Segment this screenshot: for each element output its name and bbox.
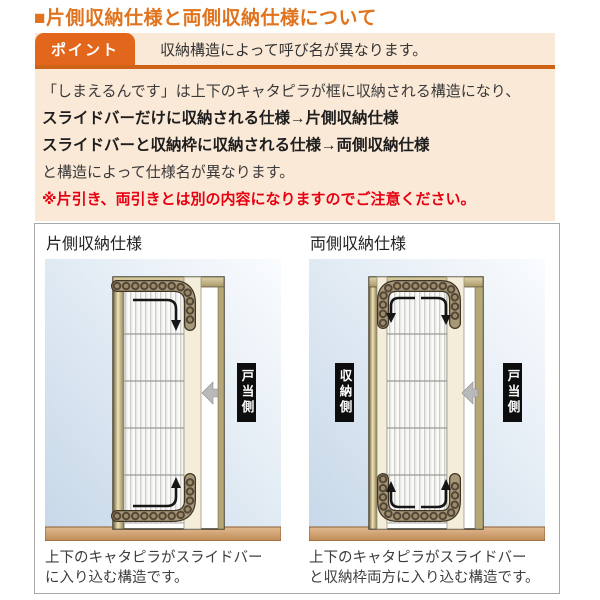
point-section: ポイント 収納構造によって呼び名が異なります。 「しまえるんです」は上下のキャタ… [35, 33, 555, 221]
caption-line: 上下のキャタピラがスライドバー [45, 548, 281, 568]
description-line-2: スライドバーだけに収納される仕様→片側収納仕様 [42, 105, 547, 132]
diagram-left-title: 片側収納仕様 [46, 230, 281, 254]
diagram-right-column: 両側収納仕様 [309, 224, 545, 588]
door-stop-side-label: 戸当側 [237, 363, 256, 422]
point-header-row: ポイント 収納構造によって呼び名が異なります。 [35, 33, 555, 65]
diagram-right-canvas: 収納側 戸当側 [309, 259, 545, 541]
description-line-4: と構造によって仕様名が異なります。 [42, 159, 547, 186]
caption-line: 上下のキャタピラがスライドバー [309, 548, 545, 568]
description-line-3: スライドバーと収納枠に収納される仕様→両側収納仕様 [42, 132, 547, 159]
caption-line: に入り込む構造です。 [45, 568, 281, 588]
diagram-right-caption: 上下のキャタピラがスライドバー と収納枠両方に入り込む構造です。 [309, 548, 545, 588]
description-block: 「しまえるんです」は上下のキャタピラが框に収納される構造になり、 スライドバーだ… [35, 69, 555, 221]
diagram-panel: 片側収納仕様 [34, 223, 560, 594]
description-line-1: 「しまえるんです」は上下のキャタピラが框に収納される構造になり、 [42, 78, 547, 105]
door-stop-side-label: 戸当側 [503, 363, 522, 422]
diagram-left-caption: 上下のキャタピラがスライドバー に入り込む構造です。 [45, 548, 281, 588]
point-message: 収納構造によって呼び名が異なります。 [160, 39, 427, 60]
caption-line: と収納枠両方に入り込む構造です。 [309, 568, 545, 588]
diagram-left-column: 片側収納仕様 [45, 224, 281, 588]
point-tab: ポイント [35, 33, 135, 65]
diagram-left-canvas: 戸当側 [45, 259, 281, 541]
accordion-door [387, 287, 447, 523]
page-title: ■片側収納仕様と両側収納仕様について [34, 3, 377, 30]
warning-note: ※片引き、両引きとは別の内容になりますのでご注意ください。 [42, 186, 547, 213]
diagram-right-title: 両側収納仕様 [310, 230, 545, 254]
storage-side-label: 収納側 [335, 363, 354, 422]
